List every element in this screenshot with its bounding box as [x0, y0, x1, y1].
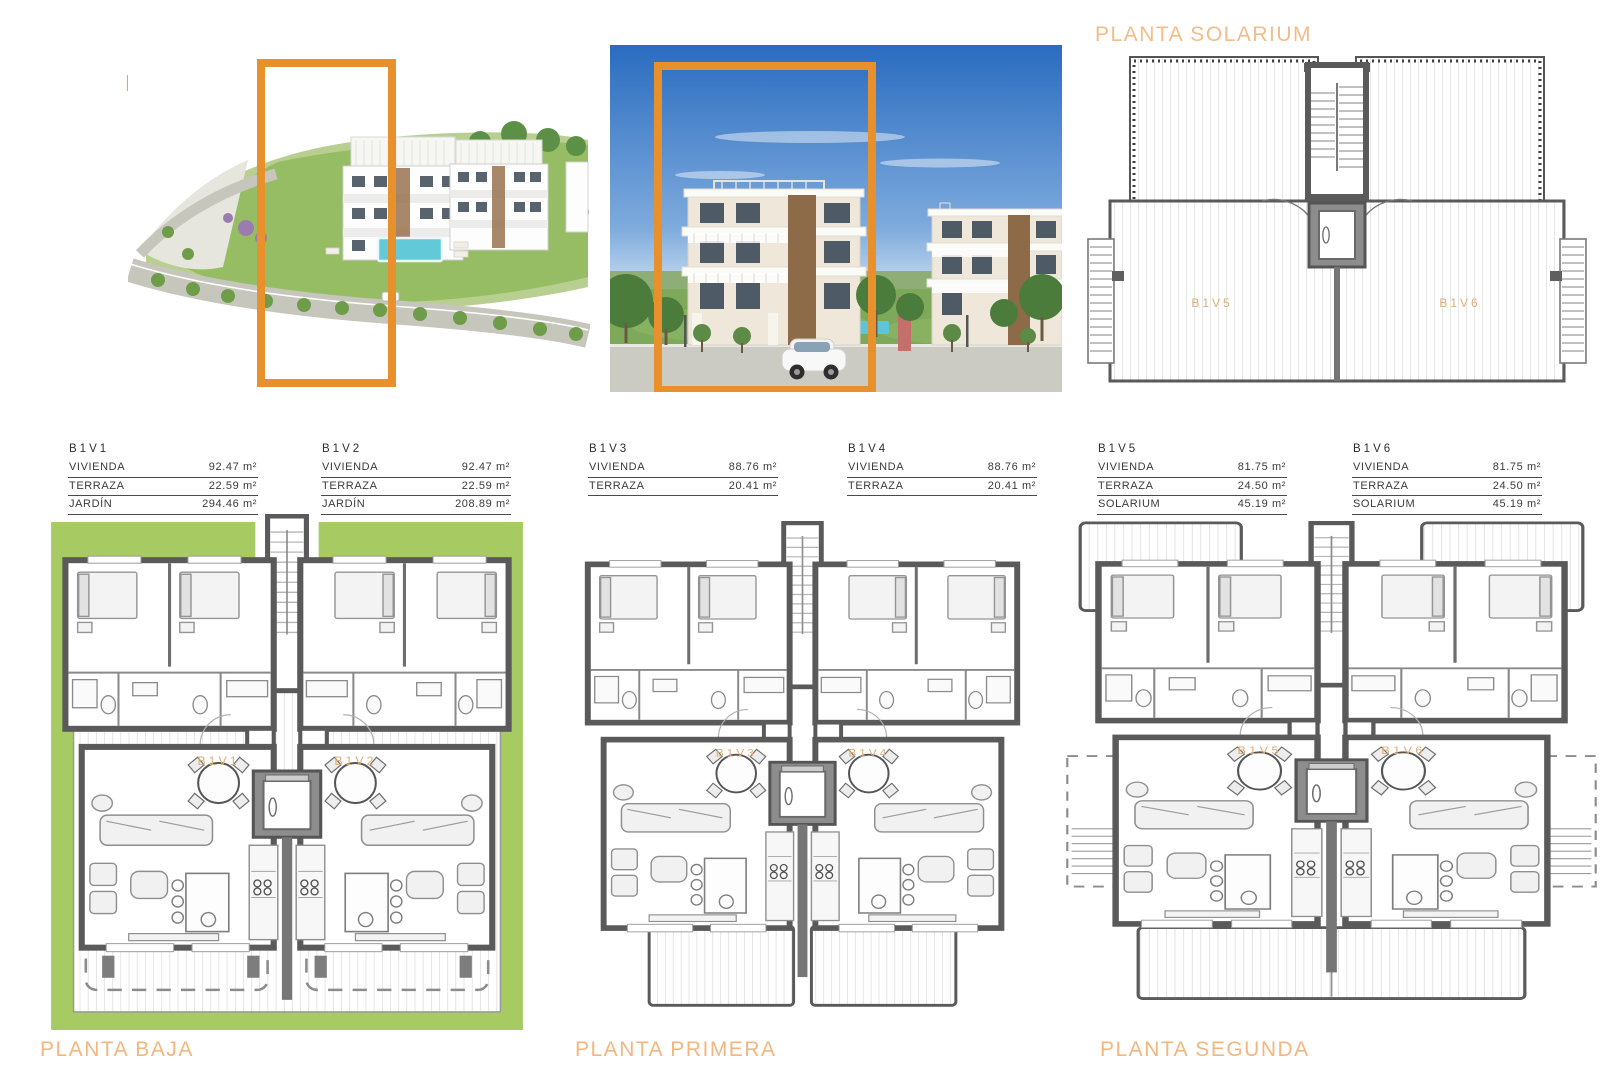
unit-id: B1V6 — [1353, 443, 1542, 455]
table-row: TERRAZA24.50 m² — [1097, 478, 1287, 497]
plan-baja: B1V1 B1V2 — [47, 514, 527, 1036]
solarium-unit-label-left: B1V5 — [1191, 296, 1232, 310]
aerial-building-2 — [450, 140, 548, 250]
unit-id: B1V1 — [69, 443, 258, 455]
solarium-unit-label-right: B1V6 — [1439, 296, 1480, 310]
table-row: TERRAZA24.50 m² — [1352, 478, 1542, 497]
aerial-site-render — [128, 42, 590, 387]
baja-unit-label-right: B1V2 — [334, 754, 376, 768]
plan-primera-title: PLANTA PRIMERA — [575, 1038, 777, 1062]
plan-solarium: B1V5 B1V6 — [1082, 53, 1592, 388]
table-row: VIVIENDA88.76 m² — [588, 459, 778, 478]
plan-segunda: B1V5 B1V6 — [1063, 521, 1600, 1006]
unit-id: B1V3 — [589, 443, 778, 455]
unit-id: B1V5 — [1098, 443, 1287, 455]
table-row: VIVIENDA88.76 m² — [847, 459, 1037, 478]
table-row: VIVIENDA81.75 m² — [1352, 459, 1542, 478]
brochure-page: { "headings": { "bloque": "BLOQUE 1", "s… — [0, 0, 1623, 1080]
table-row: SOLARIUM45.19 m² — [1352, 496, 1542, 515]
unit-table-b1v3: B1V3 VIVIENDA88.76 m² TERRAZA20.41 m² — [588, 443, 778, 496]
table-row: VIVIENDA81.75 m² — [1097, 459, 1287, 478]
table-row: TERRAZA22.59 m² — [321, 478, 511, 497]
planta-solarium-title: PLANTA SOLARIUM — [1095, 23, 1312, 47]
segunda-unit-label-right: B1V6 — [1381, 744, 1425, 757]
street-render — [610, 45, 1062, 392]
plan-baja-title: PLANTA BAJA — [40, 1038, 194, 1062]
unit-id: B1V4 — [848, 443, 1037, 455]
unit-table-b1v4: B1V4 VIVIENDA88.76 m² TERRAZA20.41 m² — [847, 443, 1037, 496]
plan-segunda-title: PLANTA SEGUNDA — [1100, 1038, 1310, 1062]
table-row: SOLARIUM45.19 m² — [1097, 496, 1287, 515]
street-building-1 — [682, 181, 866, 345]
primera-unit-label-right: B1V4 — [848, 748, 889, 760]
table-row: TERRAZA20.41 m² — [847, 478, 1037, 497]
plan-primera: B1V3 B1V4 — [570, 521, 1035, 1011]
unit-table-b1v2: B1V2 VIVIENDA92.47 m² TERRAZA22.59 m² JA… — [321, 443, 511, 515]
table-row: JARDÍN294.46 m² — [68, 496, 258, 515]
table-row: VIVIENDA92.47 m² — [68, 459, 258, 478]
table-row: TERRAZA22.59 m² — [68, 478, 258, 497]
unit-id: B1V2 — [322, 443, 511, 455]
table-row: TERRAZA20.41 m² — [588, 478, 778, 497]
baja-unit-label-left: B1V1 — [197, 754, 239, 768]
unit-table-b1v1: B1V1 VIVIENDA92.47 m² TERRAZA22.59 m² JA… — [68, 443, 258, 515]
table-row: JARDÍN208.89 m² — [321, 496, 511, 515]
primera-unit-label-left: B1V3 — [716, 748, 757, 760]
aerial-pool — [378, 238, 442, 261]
table-row: VIVIENDA92.47 m² — [321, 459, 511, 478]
unit-table-b1v5: B1V5 VIVIENDA81.75 m² TERRAZA24.50 m² SO… — [1097, 443, 1287, 515]
unit-table-b1v6: B1V6 VIVIENDA81.75 m² TERRAZA24.50 m² SO… — [1352, 443, 1542, 515]
segunda-unit-label-left: B1V5 — [1237, 744, 1281, 757]
